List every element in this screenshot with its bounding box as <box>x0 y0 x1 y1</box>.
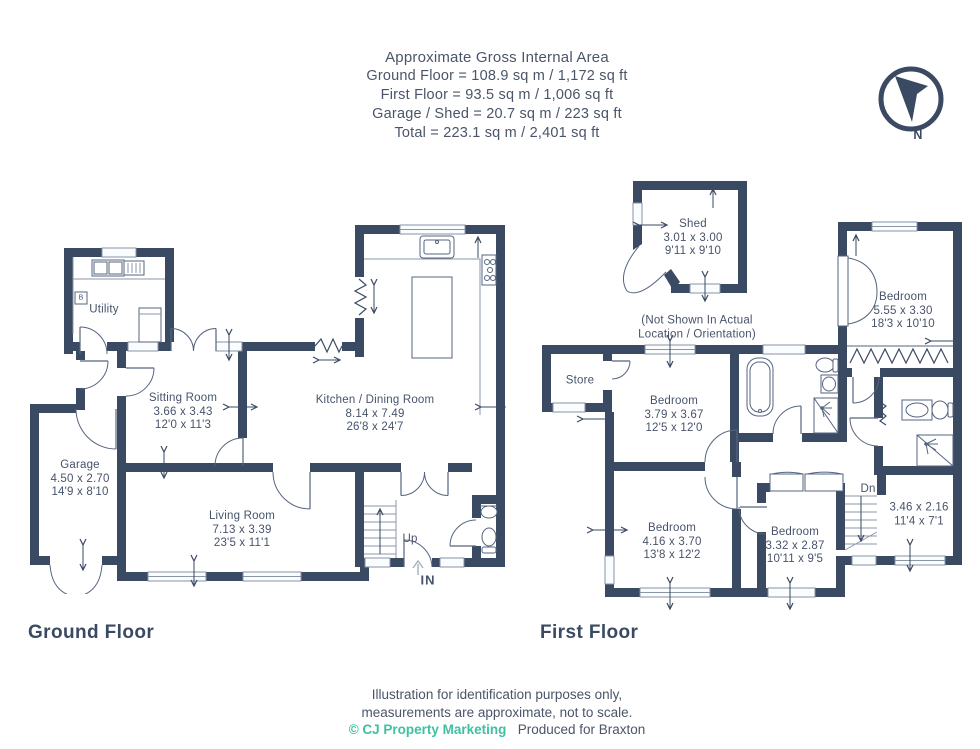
room-dim-metric: 3.32 x 2.87 <box>765 539 824 553</box>
store-label: Store <box>566 374 595 388</box>
area-line-ground: Ground Floor = 108.9 sq m / 1,172 sq ft <box>366 67 627 86</box>
shed-label: Shed 3.01 x 3.00 9'11 x 9'10 <box>663 218 722 259</box>
bedroom4-label: Bedroom 3.32 x 2.87 10'11 x 9'5 <box>765 526 824 567</box>
appliance-icon <box>139 308 161 342</box>
room-dim-imperial: 26'8 x 24'7 <box>316 421 435 435</box>
area-line-total: Total = 223.1 sq m / 2,401 sq ft <box>366 124 627 143</box>
entrance-in-label: IN <box>421 573 436 588</box>
toilet-icon <box>816 358 838 372</box>
room-dim-imperial: 12'0 x 11'3 <box>149 419 217 433</box>
room-dim-imperial: 14'9 x 8'10 <box>50 486 109 500</box>
bedroom2-label: Bedroom 3.79 x 3.67 12'5 x 12'0 <box>644 395 703 436</box>
room-name: Bedroom <box>644 395 703 409</box>
room-dim-imperial: 9'11 x 9'10 <box>663 245 722 259</box>
kitchen-island <box>412 277 452 358</box>
disclaimer: Illustration for identification purposes… <box>349 686 646 739</box>
room-dim-imperial: 11'4 x 7'1 <box>889 515 948 529</box>
kitchen-sink-icon <box>92 260 144 276</box>
room-name: Living Room <box>209 510 275 524</box>
boiler-label: B <box>79 295 84 302</box>
garage-label: Garage 4.50 x 2.70 14'9 x 8'10 <box>50 459 109 500</box>
room-dim-metric: 3.01 x 3.00 <box>663 231 722 245</box>
bathroom-fixtures <box>747 358 838 433</box>
bedroom1-label: Bedroom 5.55 x 3.30 18'3 x 10'10 <box>871 291 935 332</box>
kitchen-fixtures <box>364 236 496 415</box>
bedroom3-label: Bedroom 4.16 x 3.70 13'8 x 12'2 <box>642 522 701 563</box>
kitchen-dining-label: Kitchen / Dining Room 8.14 x 7.49 26'8 x… <box>316 394 435 435</box>
room-name: Utility <box>89 303 119 317</box>
room-dim-imperial: 10'11 x 9'5 <box>765 553 824 567</box>
stairs-up-label: Up <box>402 533 417 545</box>
living-room-label: Living Room 7.13 x 3.39 23'5 x 11'1 <box>209 510 275 551</box>
utility-fixtures <box>73 257 165 342</box>
disclaimer-line2: measurements are approximate, not to sca… <box>349 704 646 722</box>
room-dim-imperial: 23'5 x 11'1 <box>209 537 275 551</box>
floorplan-page: Approximate Gross Internal Area Ground F… <box>0 0 980 749</box>
area-summary: Approximate Gross Internal Area Ground F… <box>366 48 627 143</box>
produced-for-text: Produced for Braxton <box>518 722 646 737</box>
area-summary-title: Approximate Gross Internal Area <box>366 48 627 67</box>
ground-floor-doors <box>50 327 476 594</box>
room-dim-imperial: 18'3 x 10'10 <box>871 318 935 332</box>
shed-note: (Not Shown In Actual Location / Orientat… <box>638 315 756 342</box>
compass-n-label: N <box>913 128 922 142</box>
room-dim-metric: 3.79 x 3.67 <box>644 408 703 422</box>
credit-text: © CJ Property Marketing <box>349 722 507 737</box>
stairs-up <box>364 500 396 558</box>
room-name: Shed <box>663 218 722 232</box>
toilet-icon <box>932 401 953 419</box>
shower-icon <box>814 398 838 433</box>
room-dim-metric: 5.55 x 3.30 <box>871 304 935 318</box>
area-line-first: First Floor = 93.5 sq m / 1,006 sq ft <box>366 86 627 105</box>
shed-note-line2: Location / Orientation) <box>638 328 756 342</box>
toilet-icon <box>482 528 496 553</box>
utility-label: Utility <box>89 303 119 317</box>
floor-plan-first <box>540 178 965 618</box>
ensuite-fixtures <box>880 400 953 466</box>
room-dim-imperial: 13'8 x 12'2 <box>642 549 701 563</box>
room-name: Bedroom <box>871 291 935 305</box>
shed-note-line1: (Not Shown In Actual <box>638 315 756 329</box>
sitting-room-label: Sitting Room 3.66 x 3.43 12'0 x 11'3 <box>149 392 217 433</box>
room-name: Bedroom <box>642 522 701 536</box>
stairs-down-label: Dn <box>860 483 875 495</box>
room-dim-metric: 4.50 x 2.70 <box>50 472 109 486</box>
room-name: Store <box>566 374 595 388</box>
area-line-garage: Garage / Shed = 20.7 sq m / 223 sq ft <box>366 105 627 124</box>
sink-icon <box>821 375 838 393</box>
room-name: Kitchen / Dining Room <box>316 394 435 408</box>
sink-icon <box>480 506 498 518</box>
bathtub-icon <box>747 358 773 416</box>
sink-icon <box>902 400 932 420</box>
room-name: Bedroom <box>765 526 824 540</box>
room-dim-metric: 4.16 x 3.70 <box>642 535 701 549</box>
room-name: Garage <box>50 459 109 473</box>
stairs-down <box>845 496 877 550</box>
wardrobe-rail <box>847 346 953 363</box>
room-dim-metric: 3.46 x 2.16 <box>889 502 948 516</box>
room-dim-metric: 7.13 x 3.39 <box>209 523 275 537</box>
landing-room-label: 3.46 x 2.16 11'4 x 7'1 <box>889 502 948 529</box>
disclaimer-line1: Illustration for identification purposes… <box>349 686 646 704</box>
room-dim-imperial: 12'5 x 12'0 <box>644 422 703 436</box>
hob-icon <box>482 255 496 285</box>
ground-floor-title: Ground Floor <box>28 622 154 644</box>
room-dim-metric: 3.66 x 3.43 <box>149 405 217 419</box>
sink-icon <box>420 236 454 258</box>
first-floor-title: First Floor <box>540 622 638 644</box>
shower-icon <box>917 435 953 466</box>
room-dim-metric: 8.14 x 7.49 <box>316 407 435 421</box>
room-name: Sitting Room <box>149 392 217 406</box>
wc-fixtures <box>480 506 498 553</box>
